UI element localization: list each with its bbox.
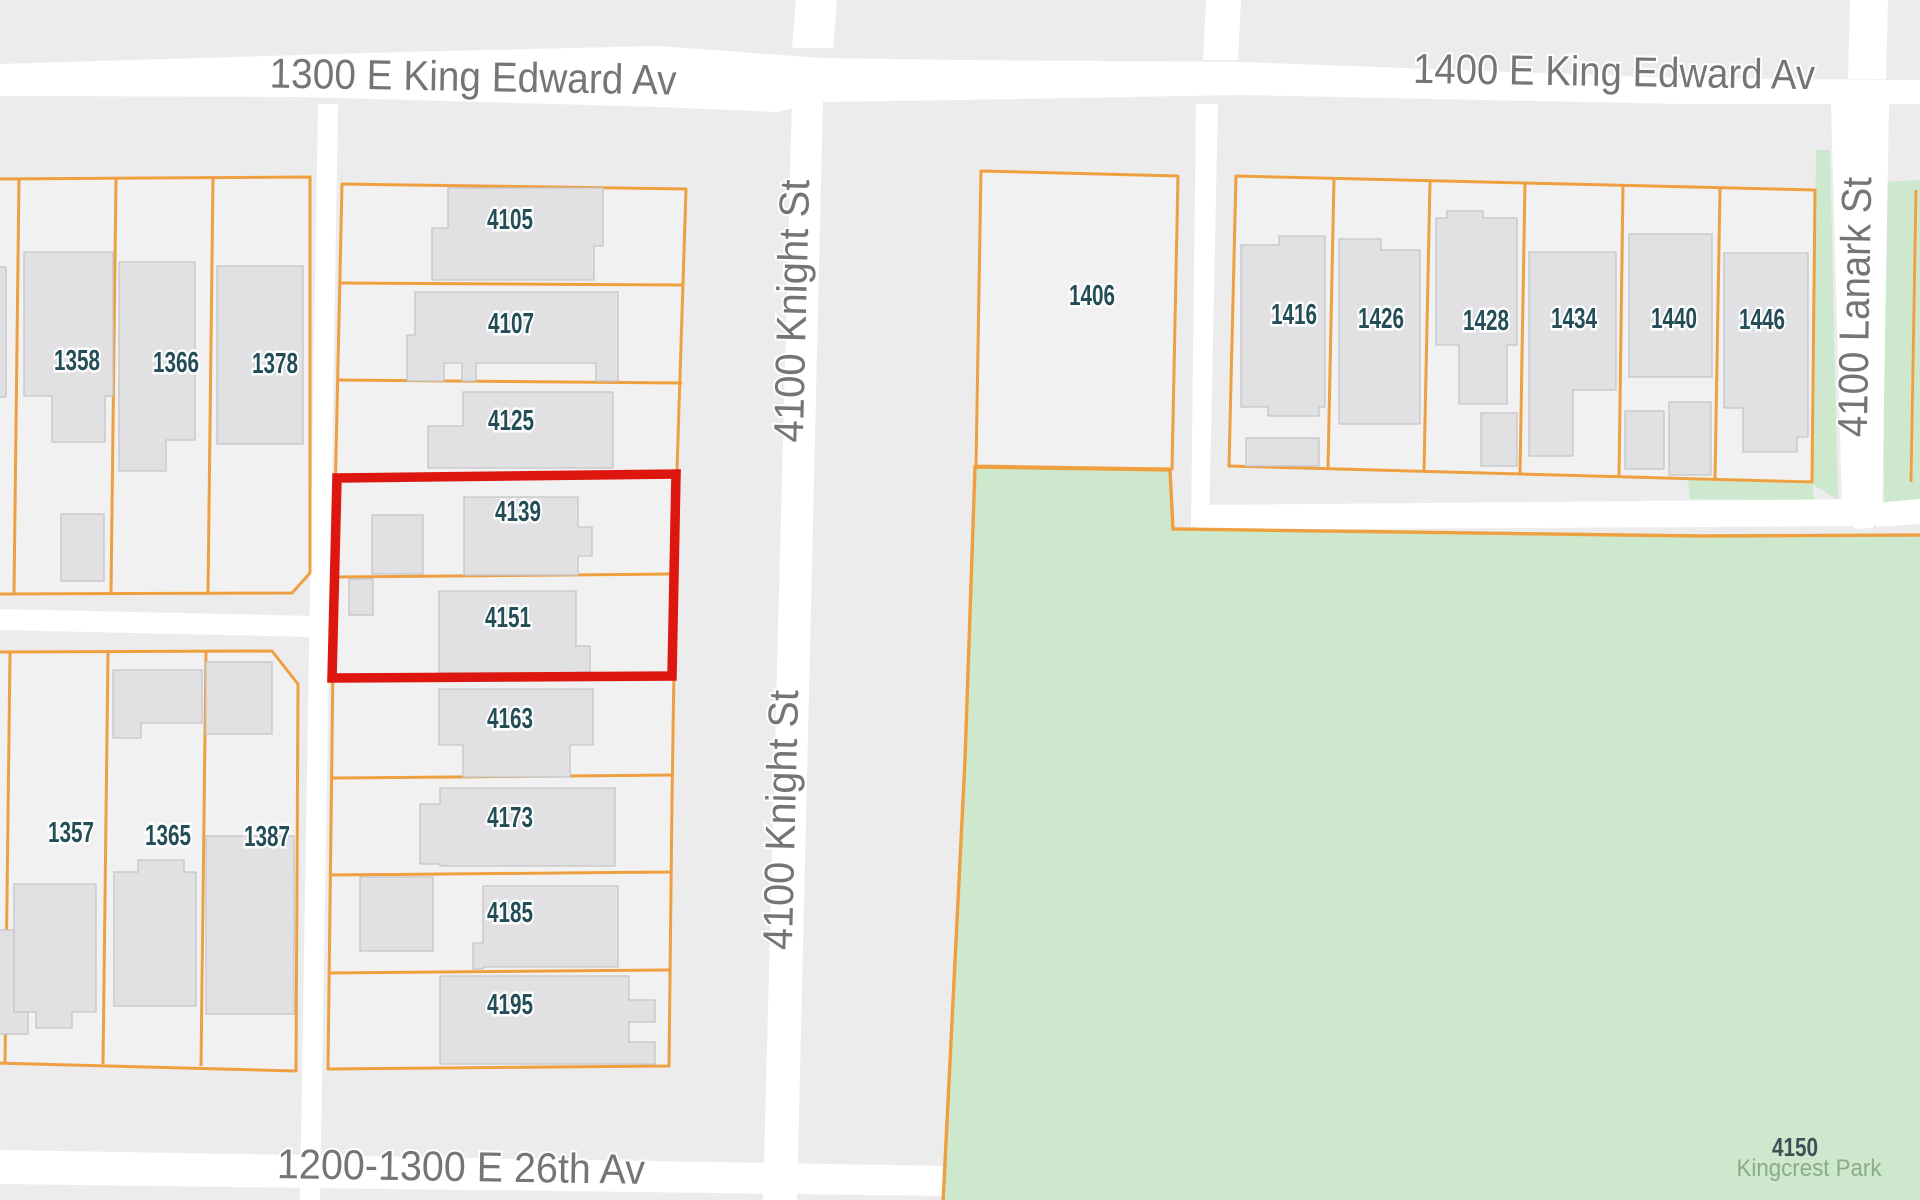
svg-text:1428: 1428 [1463,305,1509,337]
svg-text:4125: 4125 [488,405,534,437]
svg-text:4105: 4105 [487,204,533,236]
svg-text:4163: 4163 [487,703,533,735]
svg-text:4107: 4107 [488,308,534,340]
svg-text:1300 E King Edward Av: 1300 E King Edward Av [269,49,677,103]
svg-text:1387: 1387 [244,821,290,853]
svg-text:1400 E King Edward Av: 1400 E King Edward Av [1413,45,1816,98]
svg-text:1406: 1406 [1069,280,1115,312]
svg-text:1416: 1416 [1271,299,1317,331]
svg-text:1446: 1446 [1739,304,1785,336]
svg-text:1358: 1358 [54,345,100,377]
svg-text:4139: 4139 [495,496,541,528]
svg-text:4151: 4151 [485,602,531,634]
svg-text:1366: 1366 [153,347,199,379]
svg-text:1357: 1357 [48,817,94,849]
svg-text:4100 Lanark St: 4100 Lanark St [1829,176,1881,437]
svg-text:4100 Knight St: 4100 Knight St [765,179,818,443]
svg-text:1434: 1434 [1551,303,1597,335]
svg-text:4185: 4185 [487,897,533,929]
svg-text:1200-1300 E 26th Av: 1200-1300 E 26th Av [277,1140,646,1193]
svg-text:4195: 4195 [487,989,533,1021]
svg-text:1378: 1378 [252,348,298,380]
svg-text:1440: 1440 [1651,303,1697,335]
svg-text:1426: 1426 [1358,303,1404,335]
svg-text:4173: 4173 [487,802,533,834]
svg-text:4100 Knight St: 4100 Knight St [754,689,807,950]
svg-text:Kingcrest Park: Kingcrest Park [1737,1155,1883,1182]
svg-text:1365: 1365 [145,820,191,852]
